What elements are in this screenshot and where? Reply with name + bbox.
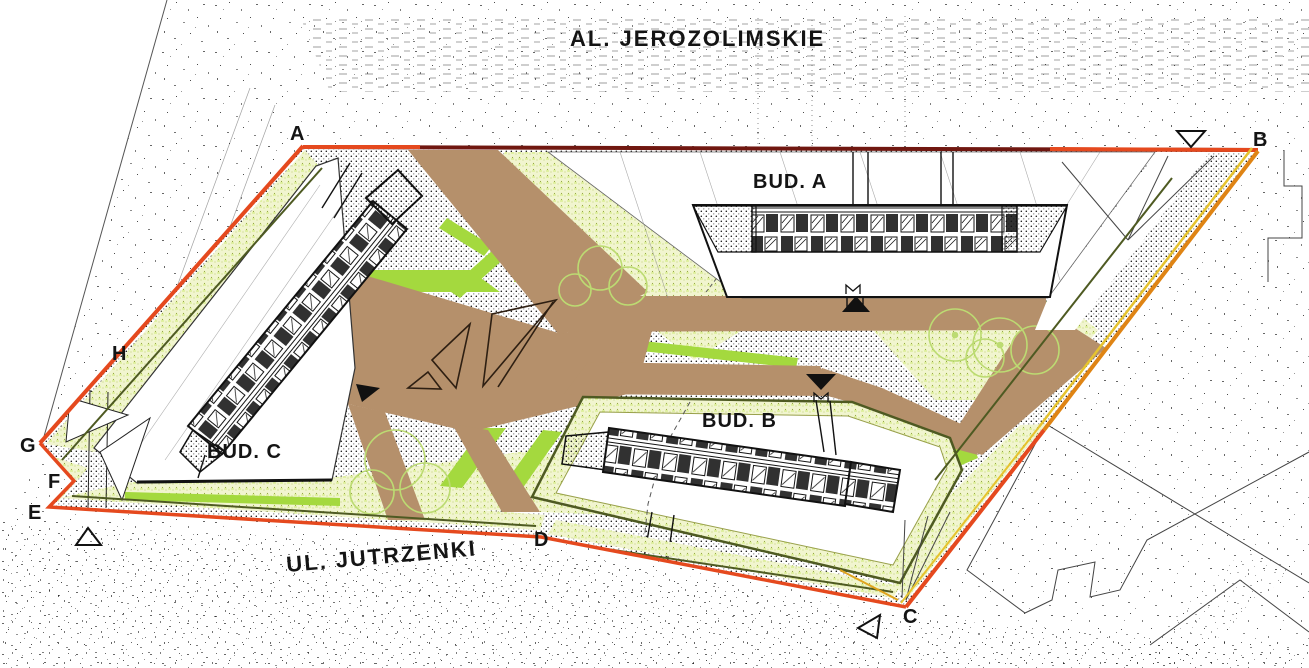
bud-a-label: BUD. A: [753, 171, 827, 193]
boundary-point-c: C: [903, 606, 917, 628]
boundary-point-b: B: [1253, 129, 1267, 151]
boundary-point-f: F: [48, 471, 60, 493]
bud-a-floorplan: [752, 206, 1017, 252]
boundary-point-d: D: [534, 529, 548, 551]
site-plan-canvas: AL. JEROZOLIMSKIE UL. JUTRZENKI BUD. A B…: [0, 0, 1309, 668]
site-plan-drawing: AL. JEROZOLIMSKIE UL. JUTRZENKI BUD. A B…: [0, 0, 1309, 668]
bud-c-label: BUD. C: [207, 441, 282, 463]
boundary-point-a: A: [290, 123, 304, 145]
bud-b-label: BUD. B: [702, 410, 777, 432]
street-label-top: AL. JEROZOLIMSKIE: [570, 26, 825, 51]
boundary-point-g: G: [20, 435, 36, 457]
boundary-point-e: E: [28, 502, 41, 524]
boundary-point-h: H: [112, 343, 126, 365]
